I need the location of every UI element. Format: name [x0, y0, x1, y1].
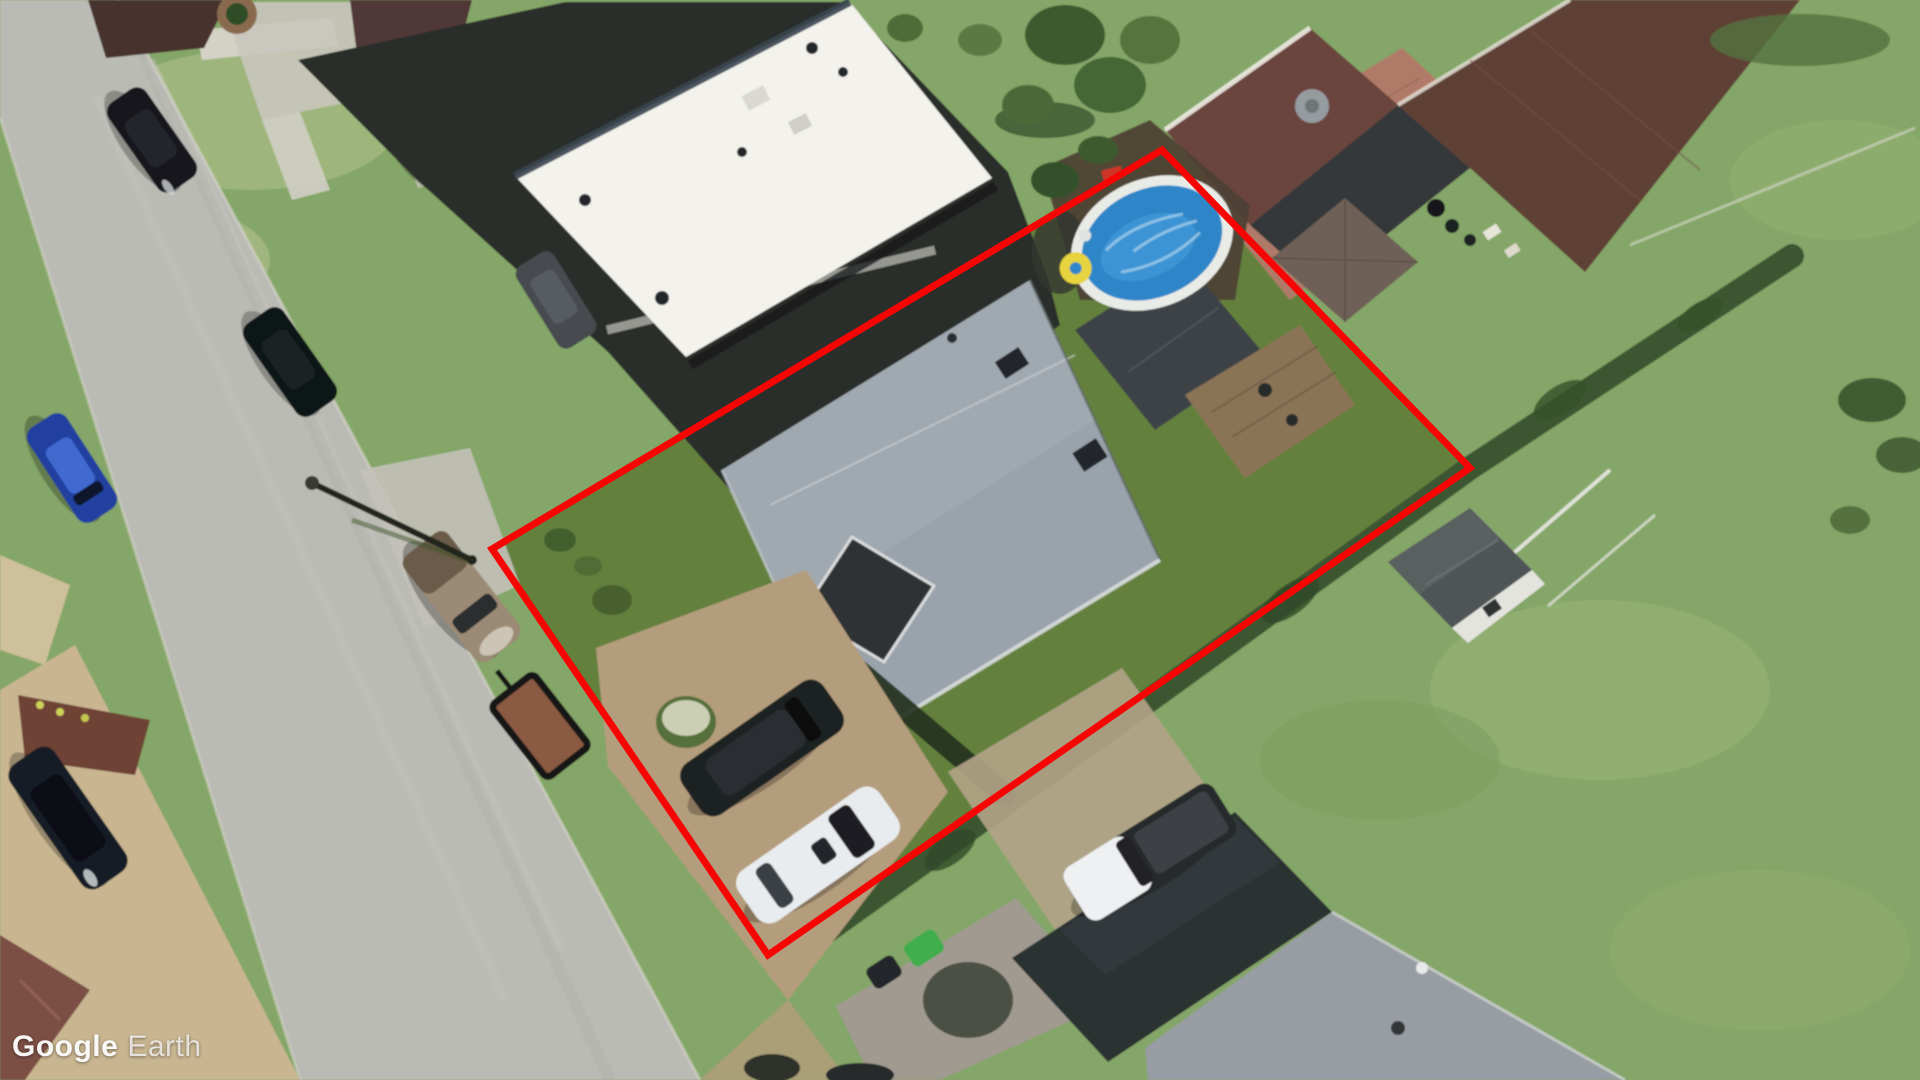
google-earth-watermark: GoogleEarth [12, 1030, 202, 1064]
tree-canopy [1002, 85, 1054, 125]
shadow-blob [923, 962, 1013, 1038]
deck-furniture [1258, 383, 1272, 397]
dry-grass-patch [1610, 870, 1910, 1030]
bush [1031, 162, 1079, 198]
street-light-base [467, 555, 477, 565]
bush [887, 14, 923, 42]
bush [1838, 378, 1906, 422]
garden-flowers [36, 701, 44, 709]
garden-bush [226, 3, 248, 25]
planter [1464, 234, 1476, 246]
roof-vent [1416, 962, 1428, 974]
roof-vent [737, 147, 747, 157]
garden-flowers [56, 708, 64, 716]
tree-canopy [1074, 57, 1146, 113]
grass-patch [1260, 700, 1500, 820]
roof-vent [838, 67, 848, 77]
aerial-map[interactable] [0, 0, 1920, 1080]
garden-flowers [81, 714, 89, 722]
imagery-layer [0, 0, 1920, 1080]
roof-vent [655, 291, 669, 305]
tree-canopy [1120, 16, 1180, 64]
tree-canopy [958, 24, 1002, 56]
deck-furniture [1286, 414, 1298, 426]
bush [574, 556, 602, 576]
flower-bush-blooms [662, 700, 710, 736]
bush [592, 585, 632, 615]
roof-vent [806, 42, 818, 54]
grill [1427, 199, 1445, 217]
tree-canopy [1025, 5, 1105, 65]
planter [1445, 219, 1459, 233]
google-earth-viewport: GoogleEarth [0, 0, 1920, 1080]
bush [1830, 506, 1870, 534]
bush [1078, 136, 1118, 164]
roof-vent [947, 333, 957, 343]
watermark-word-google: Google [12, 1030, 118, 1063]
roof-vent [579, 194, 591, 206]
tree-shadow [1710, 14, 1890, 66]
watermark-word-earth: Earth [127, 1030, 201, 1063]
street-light-head [305, 476, 319, 490]
satellite-dish-center [1305, 99, 1319, 113]
roof-vent [1391, 1021, 1405, 1035]
bush [544, 528, 576, 552]
